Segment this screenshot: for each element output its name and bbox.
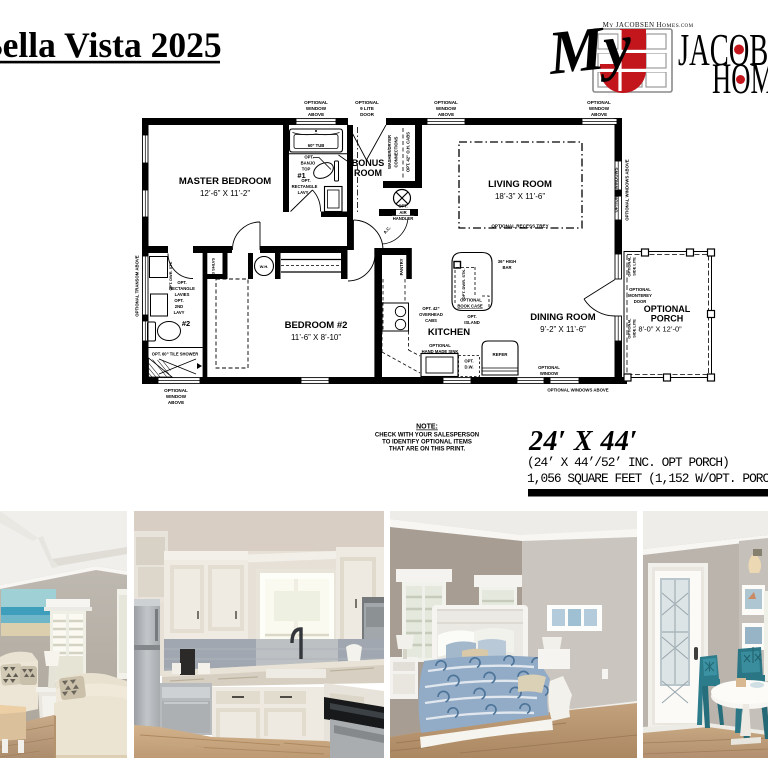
svg-text:ABOVE: ABOVE: [308, 112, 324, 117]
svg-text:LAVY: LAVY: [298, 190, 309, 195]
svg-text:BOOK CASE: BOOK CASE: [457, 304, 483, 309]
svg-text:OPTIONAL: OPTIONAL: [644, 304, 691, 314]
svg-text:OPTIONAL: OPTIONAL: [629, 287, 651, 292]
svg-text:OPTIONAL RECESS TREY: OPTIONAL RECESS TREY: [491, 224, 548, 229]
svg-text:OPT. 60” TILE SHOWER: OPT. 60” TILE SHOWER: [152, 352, 198, 357]
svg-text:(24’ X 44’/52’ INC. OPT PORCH): (24’ X 44’/52’ INC. OPT PORCH): [527, 455, 729, 470]
svg-text:Bella Vista 2025: Bella Vista 2025: [0, 25, 222, 65]
svg-text:AIR: AIR: [399, 210, 406, 215]
svg-text:THAT ARE ON THIS PRINT.: THAT ARE ON THIS PRINT.: [389, 447, 466, 453]
svg-text:TO IDENTIFY OPTIONAL ITEMS: TO IDENTIFY OPTIONAL ITEMS: [382, 440, 472, 446]
svg-text:OPTIONAL: OPTIONAL: [164, 388, 188, 393]
svg-text:CONNECTIONS: CONNECTIONS: [394, 136, 399, 167]
svg-text:3 SHLVS: 3 SHLVS: [211, 257, 216, 274]
svg-text:WINDOW: WINDOW: [540, 371, 558, 376]
svg-text:KITCHEN: KITCHEN: [428, 327, 470, 338]
svg-text:WASHER/DRYER: WASHER/DRYER: [387, 135, 392, 169]
svg-text:OPTIONAL: OPTIONAL: [304, 100, 328, 105]
svg-text:OPT. DWR. STK.: OPT. DWR. STK.: [461, 269, 466, 300]
svg-text:MASTER BEDROOM: MASTER BEDROOM: [179, 176, 271, 187]
svg-text:OPT.: OPT.: [177, 280, 186, 285]
svg-text:ABOVE: ABOVE: [591, 112, 607, 117]
svg-text:WINDOW: WINDOW: [166, 394, 187, 399]
svg-text:RECTANGLE: RECTANGLE: [292, 184, 318, 189]
svg-text:OPTIONAL: OPTIONAL: [538, 365, 560, 370]
svg-text:ABOVE: ABOVE: [168, 400, 184, 405]
svg-text:PORCH: PORCH: [651, 314, 684, 324]
svg-text:RECTANGLE: RECTANGLE: [169, 286, 195, 291]
svg-text:LIVING ROOM: LIVING ROOM: [488, 179, 552, 190]
svg-text:OPT.: OPT.: [464, 359, 473, 364]
svg-text:CABS: CABS: [425, 318, 437, 323]
svg-text:A.C.: A.C.: [382, 225, 391, 235]
svg-text:BEDROOM #2: BEDROOM #2: [285, 320, 348, 331]
svg-text:8’-0” X 12’-0”: 8’-0” X 12’-0”: [638, 325, 682, 334]
svg-text:PANTRY: PANTRY: [399, 258, 404, 275]
svg-text:SIDE LITE: SIDE LITE: [632, 257, 637, 276]
svg-text:OVERHEAD: OVERHEAD: [419, 312, 443, 317]
svg-text:DINING ROOM: DINING ROOM: [530, 312, 596, 323]
svg-text:OPT.: OPT.: [398, 204, 407, 209]
svg-text:My: My: [544, 12, 635, 88]
svg-text:MONTEREY: MONTEREY: [628, 293, 652, 298]
svg-text:HANDLER: HANDLER: [393, 216, 413, 221]
svg-text:OPT.: OPT.: [174, 298, 183, 303]
svg-text:#1: #1: [297, 171, 305, 180]
svg-text:OPT.: OPT.: [304, 155, 313, 160]
svg-text:OPTIONAL: OPTIONAL: [355, 100, 379, 105]
svg-text:WINDOW: WINDOW: [589, 106, 610, 111]
svg-text:BONUS: BONUS: [352, 158, 385, 168]
svg-text:HAND MADE SINK: HAND MADE SINK: [422, 349, 459, 354]
svg-text:1,056 SQUARE FEET (1,152 W/OPT: 1,056 SQUARE FEET (1,152 W/OPT. PORCH): [527, 471, 768, 486]
svg-text:60” TUB: 60” TUB: [308, 143, 325, 148]
svg-text:ABOVE: ABOVE: [438, 112, 454, 117]
svg-text:BANJO: BANJO: [301, 161, 316, 166]
svg-text:OPTIONAL WINDOWS: OPTIONAL WINDOWS: [614, 167, 619, 212]
svg-text:LAVY: LAVY: [174, 310, 185, 315]
svg-text:OPTIONAL WINDOWS ABOVE: OPTIONAL WINDOWS ABOVE: [625, 159, 630, 220]
svg-text:CHECK WITH YOUR SALESPERSON: CHECK WITH YOUR SALESPERSON: [375, 433, 479, 439]
svg-text:LAVIES: LAVIES: [175, 292, 190, 297]
svg-text:9’-2” X 11’-6”: 9’-2” X 11’-6”: [540, 325, 586, 334]
svg-text:OPT.: OPT.: [467, 314, 476, 319]
svg-text:2ND: 2ND: [175, 304, 183, 309]
svg-text:OPTIONAL TRANSOM ABOVE: OPTIONAL TRANSOM ABOVE: [135, 255, 140, 316]
svg-text:WINDOW: WINDOW: [436, 106, 457, 111]
svg-text:D.W.: D.W.: [464, 365, 473, 370]
svg-text:OPTIONAL: OPTIONAL: [429, 343, 451, 348]
svg-text:12’-6” X 11’-2”: 12’-6” X 11’-2”: [200, 189, 250, 198]
svg-text:9 LITE: 9 LITE: [360, 106, 374, 111]
svg-text:24′ X 44′: 24′ X 44′: [528, 426, 638, 457]
svg-text:OPTIONAL: OPTIONAL: [434, 100, 458, 105]
svg-text:BAR: BAR: [502, 265, 511, 270]
svg-text:OPT. 42”: OPT. 42”: [422, 306, 439, 311]
svg-text:OPTIONAL: OPTIONAL: [460, 298, 482, 303]
svg-text:REFER: REFER: [493, 352, 509, 357]
svg-text:36” HIGH: 36” HIGH: [498, 259, 516, 264]
svg-text:WINDOW: WINDOW: [306, 106, 327, 111]
svg-text:ROOM: ROOM: [354, 168, 382, 178]
svg-text:OPT. 42” O.H. CABS: OPT. 42” O.H. CABS: [406, 132, 411, 172]
svg-text:NOTE:: NOTE:: [416, 424, 438, 431]
svg-text:W.H.: W.H.: [260, 264, 269, 269]
svg-text:DOOR: DOOR: [360, 112, 374, 117]
svg-text:OPTIONAL WINDOWS ABOVE: OPTIONAL WINDOWS ABOVE: [547, 388, 608, 393]
svg-text:SIDE LITE: SIDE LITE: [632, 319, 637, 338]
svg-text:#2: #2: [182, 319, 190, 328]
svg-text:18’-3” X 11’-6”: 18’-3” X 11’-6”: [495, 192, 545, 201]
svg-text:ISLAND: ISLAND: [464, 320, 480, 325]
svg-text:11’-6” X 8’-10”: 11’-6” X 8’-10”: [291, 333, 341, 342]
svg-text:OPTIONAL: OPTIONAL: [587, 100, 611, 105]
